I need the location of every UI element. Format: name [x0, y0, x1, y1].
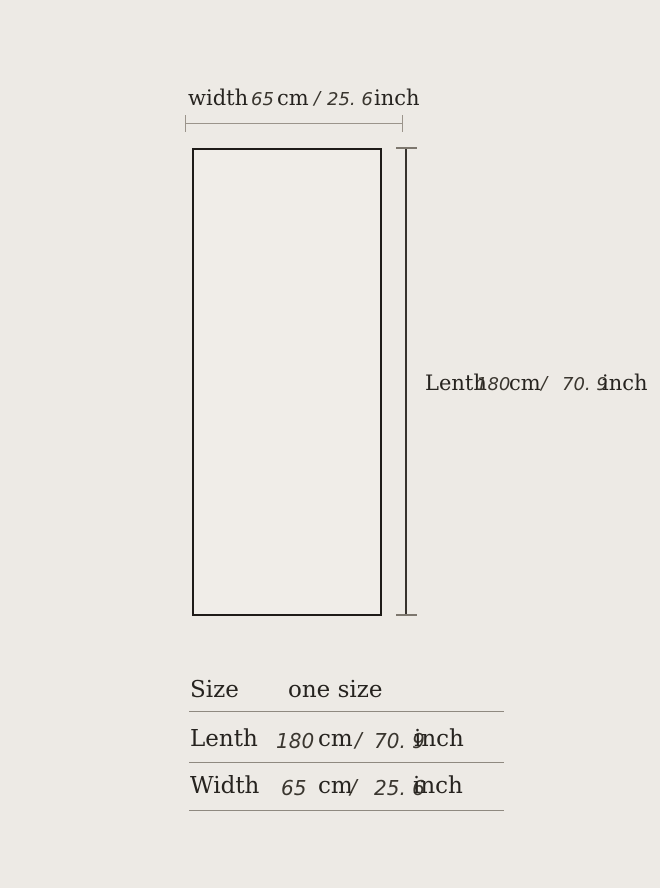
table-length-cm-unit: cm: [318, 728, 353, 751]
length-label-slash: /: [541, 375, 547, 393]
table-width-label: Width: [190, 775, 259, 798]
length-label-cm-value: 180: [476, 376, 510, 394]
length-dimension-cap-top: [396, 147, 417, 149]
length-label-cm-unit: cm: [509, 373, 541, 394]
width-dimension-line: [185, 123, 403, 124]
width-dimension-tick-left: [185, 115, 186, 132]
table-width-cm-unit: cm: [318, 775, 353, 798]
width-label-cm-value: 65: [251, 91, 274, 109]
table-width-cm-value: 65: [281, 778, 306, 798]
width-label-cm-unit: cm: [277, 88, 309, 109]
table-size-value: one size: [288, 679, 382, 702]
width-label-inch-unit: inch: [374, 88, 420, 109]
width-label-inch-value: 25. 6: [327, 91, 373, 109]
table-length-label: Lenth: [190, 728, 258, 751]
table-width-inch-unit: inch: [413, 775, 463, 798]
table-rule-2: [189, 762, 504, 763]
width-label-word: width: [188, 88, 248, 109]
length-dimension-line: [405, 149, 407, 615]
size-guide-diagram: width 65 cm / 25. 6 inch Lenth 180 cm / …: [0, 0, 660, 888]
length-label-inch-unit: inch: [602, 373, 648, 394]
table-rule-1: [189, 711, 504, 712]
table-length-slash: /: [355, 730, 362, 750]
length-label-inch-value: 70. 9: [562, 376, 608, 394]
table-size-label: Size: [190, 679, 239, 702]
table-length-cm-value: 180: [276, 731, 314, 751]
width-label-slash: /: [314, 90, 320, 108]
length-dimension-cap-bottom: [396, 614, 417, 616]
width-dimension-tick-right: [402, 115, 403, 132]
table-length-inch-unit: inch: [414, 728, 464, 751]
table-rule-3: [189, 810, 504, 811]
product-outline: [192, 148, 382, 616]
table-width-slash: /: [350, 777, 357, 797]
